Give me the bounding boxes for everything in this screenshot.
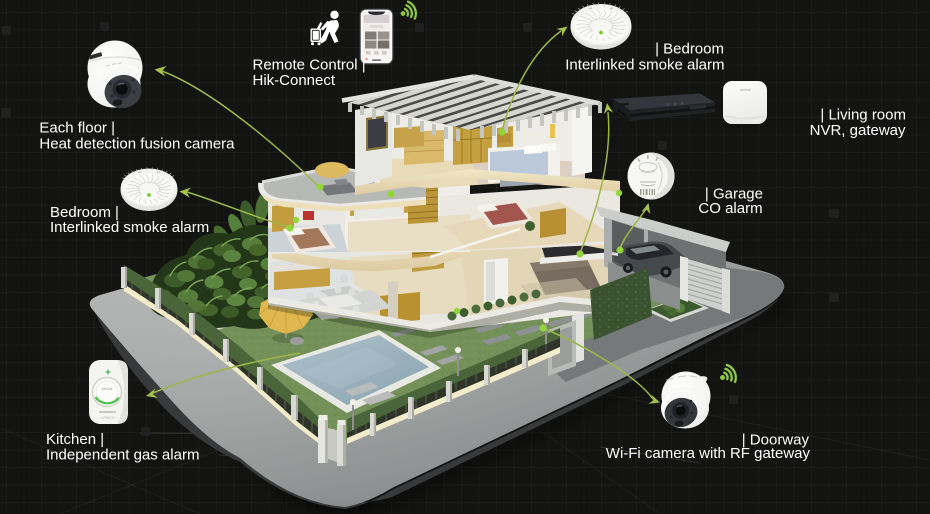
svg-text:Each floor |: Each floor | [39, 120, 115, 137]
svg-text:Heat detection fusion camera: Heat detection fusion camera [39, 135, 235, 152]
svg-text:Wi-Fi camera with RF gateway: Wi-Fi camera with RF gateway [606, 445, 811, 462]
svg-text:NVR, gateway: NVR, gateway [810, 122, 906, 139]
svg-text:Hik-Connect: Hik-Connect [253, 72, 336, 89]
svg-text:Remote Control |: Remote Control | [253, 56, 366, 73]
svg-text:Kitchen |: Kitchen | [46, 431, 104, 448]
svg-text:NetGas: NetGas [102, 387, 113, 391]
svg-text:CO alarm: CO alarm [698, 200, 762, 217]
svg-text:LPG/CO: LPG/CO [101, 416, 115, 420]
svg-text:| Bedroom: | Bedroom [655, 41, 724, 58]
svg-text:Interlinked smoke alarm: Interlinked smoke alarm [50, 219, 209, 236]
svg-text:Independent gas alarm: Independent gas alarm [46, 447, 199, 464]
svg-text:Interlinked smoke alarm: Interlinked smoke alarm [565, 57, 724, 74]
svg-text:| Living room: | Living room [820, 106, 906, 123]
